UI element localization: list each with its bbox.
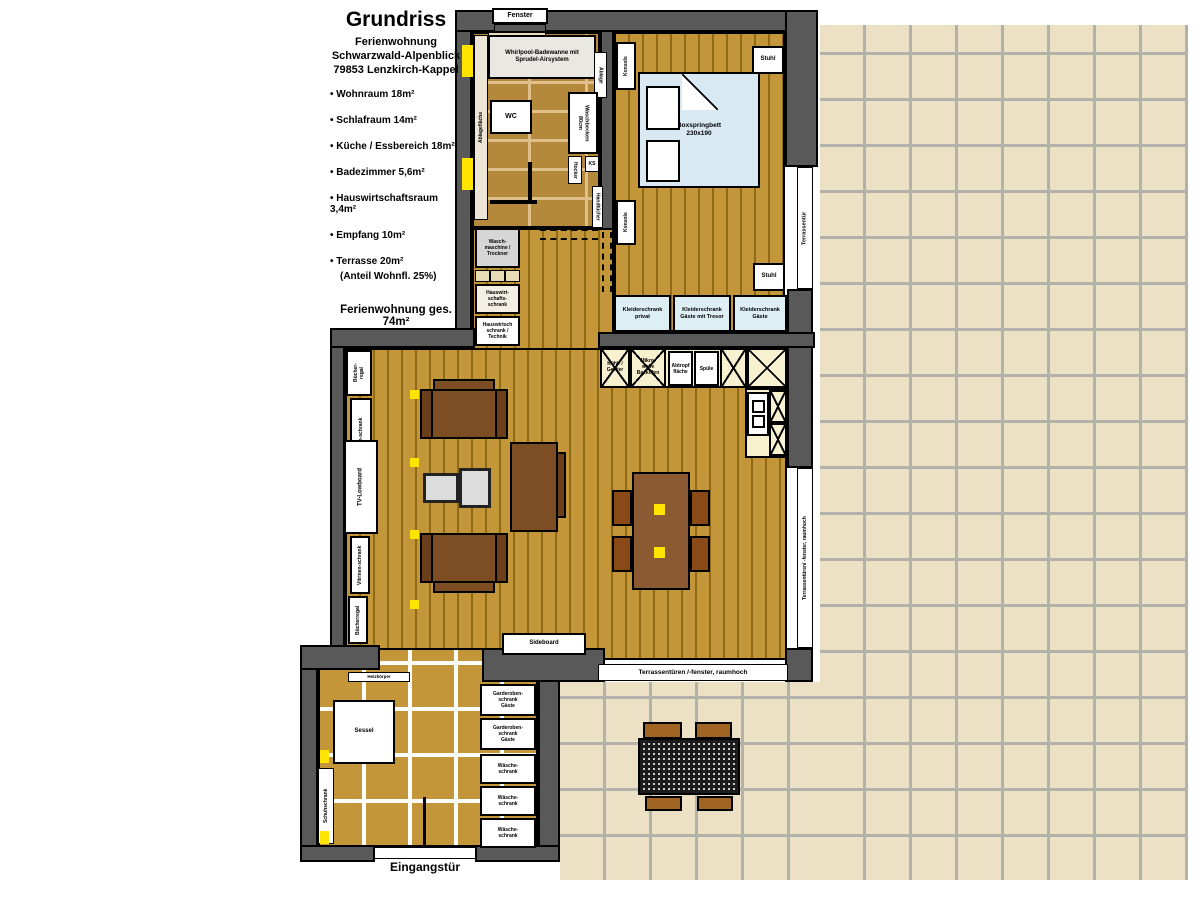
console-bottom: Konsole <box>616 200 636 245</box>
entry-door-label: Eingangstür <box>360 860 490 874</box>
terrace-table <box>638 738 740 795</box>
eingangstuer-text: Eingangstür <box>390 860 460 874</box>
entry-door-opening <box>374 847 476 859</box>
wardrobe-guest-safe: Kleiderschrank Gäste mit Tresor <box>673 295 731 332</box>
sofa-top-arm-left <box>420 389 433 439</box>
dining-chair-2 <box>612 536 632 572</box>
washer-dryer: Wasch- maschine / Trockner <box>475 228 520 268</box>
microwave-oven: Mikro- welle Backofen <box>630 348 666 388</box>
room-item: Badezimmer 5,6m² <box>330 167 464 178</box>
plan-title: Grundriss <box>328 8 464 32</box>
bookshelf-top-text: Bücher- regal <box>353 364 365 383</box>
wardrobe2-text: Kleiderschrank Gäste mit Tresor <box>680 307 723 320</box>
sofa-bottom-arm-right <box>495 533 508 583</box>
tv-lowboard: TV-Lowboard <box>344 440 378 534</box>
wc: WC <box>490 100 532 134</box>
floor-light-2 <box>410 458 419 467</box>
wall-left-band <box>330 328 475 348</box>
armchair-entrance: Sessel <box>333 700 395 764</box>
drainer: Abtropf fläche <box>668 351 693 386</box>
linen-cabinet-2: Wäsche- schrank <box>480 786 536 816</box>
entry-door-leaf <box>423 797 426 848</box>
terrace-chair-4 <box>697 796 733 811</box>
bedroom-door-dash-1 <box>602 232 604 292</box>
radiator-text: Heizkörper <box>367 674 390 679</box>
linen-cab3-text: Wäsche- schrank <box>498 827 519 839</box>
coat-cabinet-2: Garderoben- schrank Gäste <box>480 718 536 750</box>
entry-light-2 <box>320 831 329 844</box>
fridge-text: Kühl- / Gefrier <box>607 362 623 374</box>
coffee-table-1 <box>423 473 459 503</box>
stove <box>747 392 769 436</box>
bookshelf-bottom-text: Bücherregal <box>355 605 361 634</box>
bedroom-door-dash-2 <box>610 232 612 292</box>
utility-cabinet-2: Hauswirtsch schrank / Technik <box>475 316 520 346</box>
linen-cab2-text: Wäsche- schrank <box>498 795 519 807</box>
room-item: Wohnraum 18m² <box>330 89 464 100</box>
sofa-bottom-backrest <box>433 581 495 593</box>
plan-subtitle-1: Ferienwohnung <box>328 36 464 50</box>
fenster-text: Fenster <box>507 12 532 20</box>
fridge-freezer: Kühl- / Gefrier <box>600 348 630 388</box>
room-item: Hauswirtschaftsraum 3,4m² <box>330 193 464 215</box>
dining-chair-1 <box>612 490 632 526</box>
plan-subtitle-2: Schwarzwald-Alpenblick <box>328 50 464 64</box>
wc-partition-h <box>490 200 537 204</box>
bed-text: Boxspringbett 230x190 <box>677 122 721 138</box>
wall-mid-band <box>598 332 815 348</box>
terrace-doors-bottom: Terrassentüren /-fenster, raumhoch <box>598 664 788 681</box>
sofa-bottom-arm-left <box>420 533 433 583</box>
bath-window-lintel <box>494 24 546 32</box>
ks-box: KS <box>585 156 599 172</box>
utility-cab2-text: Hauswirtsch schrank / Technik <box>483 322 513 340</box>
title-block: Grundriss Ferienwohnung Schwarzwald-Alpe… <box>328 8 464 328</box>
coffee-table-2 <box>459 468 491 508</box>
kitchen-cabinet-x4 <box>769 423 787 456</box>
stuhl-right-text: Stuhl <box>762 273 777 280</box>
whirlpool-tub: Whirlpool-Badewanne mit Sprudel-Airsyste… <box>488 35 596 79</box>
total-area: Ferienwohnung ges. 74m² <box>328 304 464 328</box>
terrace-door-text: Terrassentür <box>802 211 809 244</box>
burner <box>752 415 765 428</box>
tv-text: TV-Lowboard <box>357 468 364 506</box>
washer-text: Wasch- maschine / Trockner <box>485 239 511 257</box>
stuhl-top-text: Stuhl <box>761 56 776 63</box>
plan-subtitle-3: 79853 Lenzkirch-Kappel <box>328 64 464 78</box>
washbasin-text: Waschbecken 80cm <box>576 105 589 141</box>
floor-plan: Fenster Ablagefläche Whirlpool-Badewanne… <box>0 0 1200 900</box>
table-light-2 <box>654 547 665 558</box>
wall-entry-topleft <box>300 645 380 670</box>
ablageflaeche-text: Ablagefläche <box>478 112 484 143</box>
wardrobe-guest: Kleiderschrank Gäste <box>733 295 787 332</box>
bath-door-dash-1 <box>540 229 598 231</box>
bath-door-dash-2 <box>540 238 598 240</box>
terrace-note: (Anteil Wohnfl. 25%) <box>340 271 464 282</box>
radiator: Heizkörper <box>348 672 410 682</box>
terrace-doors-bottom-text: Terrassentüren /-fenster, raumhoch <box>639 669 748 677</box>
towels-text: Handtücher <box>595 193 601 221</box>
terrace-doors-right-text: Terrassentüren/ -fenster, raumhoch <box>802 516 808 600</box>
wall-living-left <box>330 346 345 650</box>
dining-chair-4 <box>690 536 710 572</box>
utility-cab1-text: Hauswirt- schafts- schrank <box>486 290 509 308</box>
room-item: Schlafraum 14m² <box>330 115 464 126</box>
schuhschrank-text: Schuhschrank <box>323 789 329 823</box>
drawer-cell <box>475 270 490 282</box>
hocker-text: Hocker <box>572 162 578 179</box>
armchair-right <box>510 442 558 532</box>
dining-chair-3 <box>690 490 710 526</box>
whirlpool-text: Whirlpool-Badewanne mit Sprudel-Airsyste… <box>505 50 579 64</box>
coat-cab2-text: Garderoben- schrank Gäste <box>493 725 523 743</box>
vitrine-bottom-text: Vitrinen-schrank <box>357 545 363 584</box>
utility-cabinet-1: Hauswirt- schafts- schrank <box>475 284 520 314</box>
konsole-bottom-text: Konsole <box>623 213 629 233</box>
utility-drawers <box>475 270 520 282</box>
coat-cabinet-1: Garderoben- schrank Gäste <box>480 684 536 716</box>
drawer-cell <box>505 270 520 282</box>
sofa-top-arm-right <box>495 389 508 439</box>
floor-light-1 <box>410 390 419 399</box>
sideboard: Sideboard <box>502 633 586 655</box>
dining-table <box>632 472 690 590</box>
linen-cab1-text: Wäsche- schrank <box>498 763 519 775</box>
washbasin: Waschbecken 80cm <box>568 92 598 154</box>
floor-light-4 <box>410 600 419 609</box>
linen-cabinet-1: Wäsche- schrank <box>480 754 536 784</box>
sink-text: Spüle <box>700 366 714 372</box>
terrace-chair-3 <box>645 796 682 811</box>
vitrine-bottom: Vitrinen-schrank <box>350 536 370 594</box>
room-list: Wohnraum 18m² Schlafraum 14m² Küche / Es… <box>328 89 464 267</box>
pillow-2 <box>646 140 680 182</box>
microwave-text: Mikro- welle Backofen <box>637 359 660 376</box>
terrace-door-bedroom: Terrassentür <box>797 167 813 289</box>
room-item: Küche / Essbereich 18m² <box>330 141 464 152</box>
kitchen-cabinet-x2 <box>747 348 787 388</box>
wall-entry-left <box>300 668 318 862</box>
room-item: Terrasse 20m² <box>330 256 464 267</box>
kitchen-cabinet-x1 <box>720 348 747 388</box>
linen-cabinet-3: Wäsche- schrank <box>480 818 536 848</box>
towel-strip: Handtücher <box>592 186 603 228</box>
drawer-cell <box>490 270 505 282</box>
entry-light-1 <box>320 750 329 763</box>
shelf-strip: Ablagefläche <box>474 35 488 220</box>
pillow-1 <box>646 86 680 130</box>
wardrobe-private: Kleiderschrank privat <box>614 295 671 332</box>
chair-right: Stuhl <box>753 263 785 291</box>
kitchen-sink: Spüle <box>694 351 719 386</box>
sideboard-text: Sideboard <box>529 640 558 647</box>
wardrobe3-text: Kleiderschrank Gäste <box>740 307 780 320</box>
wc-partition-v <box>528 162 532 204</box>
sessel-text: Sessel <box>354 728 373 735</box>
bath-window-label: Fenster <box>492 8 548 24</box>
floor-light-3 <box>410 530 419 539</box>
wall-right-mid <box>787 289 813 468</box>
terrace-doors-right: Terrassentüren/ -fenster, raumhoch <box>797 468 813 648</box>
stool: Hocker <box>568 156 582 184</box>
terrace-right <box>820 25 1188 880</box>
wall-t-stem <box>538 680 560 862</box>
bookshelf-top: Bücher- regal <box>346 350 372 396</box>
kitchen-cabinet-x3 <box>769 390 787 423</box>
konsole-top-text: Konsole <box>623 56 629 76</box>
armchair-back <box>556 452 566 518</box>
ablage-text: Ablage <box>598 67 604 84</box>
blanket-fold <box>682 74 718 110</box>
console-top: Konsole <box>616 42 636 90</box>
terrace-chair-2 <box>695 722 732 739</box>
chair-top: Stuhl <box>752 46 784 74</box>
ks-text: KS <box>589 161 596 167</box>
bookshelf-bottom: Bücherregal <box>348 596 368 644</box>
room-item: Empfang 10m² <box>330 230 464 241</box>
drainer-text: Abtropf fläche <box>671 363 689 375</box>
wardrobe1-text: Kleiderschrank privat <box>623 307 663 320</box>
coat-cab1-text: Garderoben- schrank Gäste <box>493 691 523 709</box>
wc-text: WC <box>505 113 517 121</box>
wall-right-low <box>785 648 813 682</box>
table-light-1 <box>654 504 665 515</box>
terrace-chair-1 <box>643 722 682 739</box>
burner <box>752 400 765 413</box>
wall-bedroom-right <box>785 10 818 167</box>
